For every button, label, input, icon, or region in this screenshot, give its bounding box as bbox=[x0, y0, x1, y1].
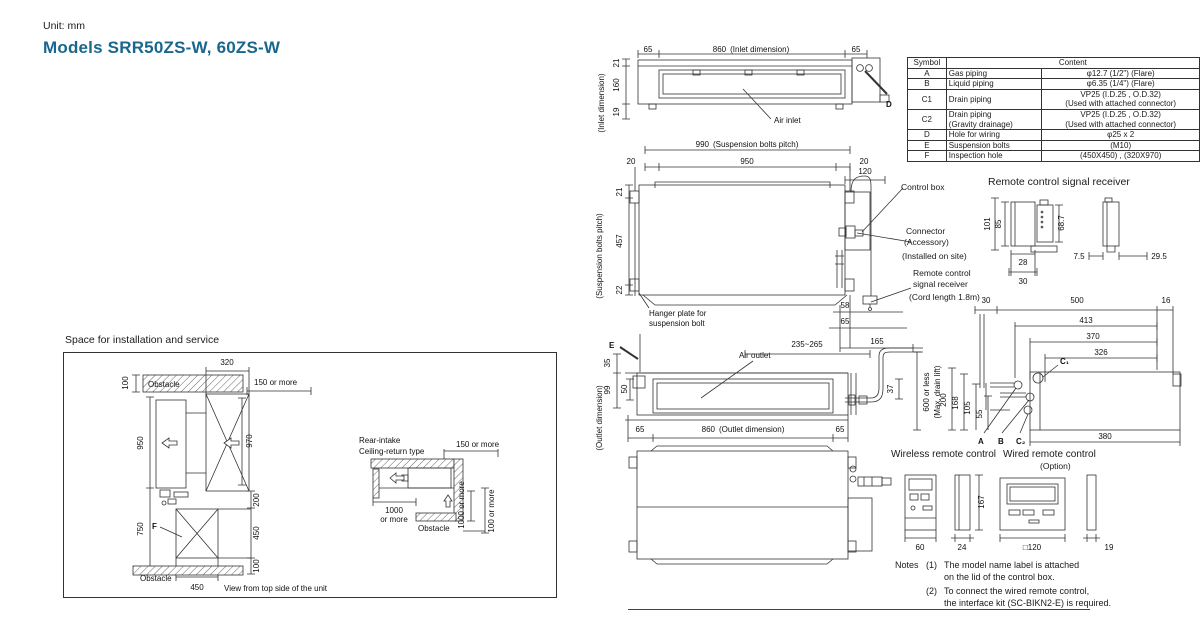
wired-remote-front bbox=[1000, 478, 1065, 530]
remote-controls-drawing: 60 24 167 □120 19 bbox=[893, 458, 1193, 558]
note2-number: (2) bbox=[926, 586, 937, 596]
cell-value: VP25 (I.D.25 , O.D.32) (Used with attach… bbox=[1042, 109, 1200, 129]
port-leaders bbox=[984, 365, 1058, 433]
hanger-plate-label-line2: suspension bolt bbox=[649, 319, 705, 328]
dim-85: 85 bbox=[994, 219, 1003, 228]
obstacle-bottom-label: Obstacle bbox=[140, 574, 172, 583]
dim-970: 970 bbox=[245, 434, 254, 448]
dim-413: 413 bbox=[1079, 316, 1093, 325]
table-row: E Suspension bolts (M10) bbox=[908, 140, 1200, 151]
dim-37: 37 bbox=[886, 384, 895, 393]
dim-167: 167 bbox=[977, 495, 986, 509]
dim-200: 200 bbox=[252, 493, 261, 507]
unit-label: Unit: mm bbox=[43, 20, 85, 32]
cell-item: Hole for wiring bbox=[946, 130, 1042, 141]
cell-value: (450X450) , (320X970) bbox=[1042, 151, 1200, 162]
dim-1000-left-line1: 1000 bbox=[385, 506, 403, 515]
dim-450-bottom: 450 bbox=[190, 583, 204, 592]
dim-500: 500 bbox=[1070, 296, 1084, 305]
dim-7-5: 7.5 bbox=[1073, 252, 1085, 261]
hanger-plate-label-line1: Hanger plate for bbox=[649, 309, 707, 318]
cell-value-line2: (Used with attached connector) bbox=[1044, 120, 1197, 130]
dim-21: 21 bbox=[612, 58, 621, 67]
rear-intake-label-line2: Ceiling-return type bbox=[359, 447, 425, 456]
receiver-side-view bbox=[1103, 198, 1119, 252]
cell-item-line1: Drain piping bbox=[949, 110, 1040, 120]
dim-50: 50 bbox=[620, 384, 629, 393]
dim-21: 21 bbox=[615, 187, 624, 196]
front-view-drawing: 990(Suspension bolts pitch) 20 950 20 12… bbox=[593, 136, 915, 352]
table-row: B Liquid piping φ6.35 (1/4") (Flare) bbox=[908, 79, 1200, 90]
symbol-table: Symbol Content A Gas piping φ12.7 (1/2")… bbox=[907, 57, 1200, 162]
note2-line1: To connect the wired remote control, bbox=[944, 586, 1089, 596]
cell-item: Drain piping (Gravity drainage) bbox=[946, 109, 1042, 129]
dim-100-bottom: 100 bbox=[252, 559, 261, 573]
dim-120-square: □120 bbox=[1023, 543, 1042, 552]
obstacle-top-label: Obstacle bbox=[148, 380, 180, 389]
table-header-row: Symbol Content bbox=[908, 58, 1200, 69]
dim-150-right: 150 or more bbox=[456, 440, 500, 449]
dim-30: 30 bbox=[982, 296, 991, 305]
dim-60: 60 bbox=[916, 543, 925, 552]
dim-168: 168 bbox=[951, 396, 960, 410]
dim-160: 160 bbox=[612, 78, 621, 92]
receiver-detail-drawing: 101 85 68.7 28 30 7.5 29.5 bbox=[985, 188, 1185, 290]
dim-105: 105 bbox=[963, 401, 972, 415]
receiver-side-dims bbox=[1089, 252, 1147, 260]
cell-item: Inspection hole bbox=[946, 151, 1042, 162]
dim-65-left: 65 bbox=[644, 45, 653, 54]
view-caption: View from top side of the unit bbox=[224, 584, 328, 593]
inspection-hole bbox=[160, 509, 218, 558]
dim-20-right: 20 bbox=[860, 157, 869, 166]
cell-value: VP25 (I.D.25 , O.D.32) (Used with attach… bbox=[1042, 89, 1200, 109]
dim-58: 58 bbox=[841, 301, 850, 310]
note1-line1: The model name label is attached bbox=[944, 560, 1079, 570]
dim-100-rotated: 100 or more bbox=[487, 489, 496, 533]
port-c1-label: C₁ bbox=[1060, 357, 1070, 366]
col-symbol: Symbol bbox=[908, 58, 947, 69]
suspension-bolt-label: E bbox=[609, 341, 615, 350]
cell-value: φ25 x 2 bbox=[1042, 130, 1200, 141]
installation-title: Space for installation and service bbox=[65, 334, 219, 346]
connector-label-line1: Connector bbox=[906, 226, 945, 236]
dim-990: 990(Suspension bolts pitch) bbox=[696, 140, 799, 149]
dim-950: 950 bbox=[740, 157, 754, 166]
unit-bottom-body bbox=[629, 446, 872, 564]
dim-457: 457 bbox=[615, 234, 624, 248]
cell-value: (M10) bbox=[1042, 140, 1200, 151]
connector-label-line3: (Installed on site) bbox=[902, 251, 967, 261]
cell-item: Drain piping bbox=[946, 89, 1042, 109]
dim-320: 320 bbox=[220, 358, 234, 367]
dim-750: 750 bbox=[136, 522, 145, 536]
dim-30: 30 bbox=[1019, 277, 1028, 286]
dim-860-inlet: 860(Inlet dimension) bbox=[713, 45, 790, 54]
inlet-dimension-axis-note: (Inlet dimension) bbox=[597, 73, 606, 132]
cell-value: φ6.35 (1/4") (Flare) bbox=[1042, 79, 1200, 90]
wired-dims bbox=[1000, 534, 1100, 542]
table-row: D Hole for wiring φ25 x 2 bbox=[908, 130, 1200, 141]
unit-plan-dims bbox=[146, 397, 246, 569]
unit-front-body bbox=[630, 167, 854, 305]
dim-450-right: 450 bbox=[252, 526, 261, 540]
control-box-label: Control box bbox=[901, 182, 944, 192]
cell-item: Liquid piping bbox=[946, 79, 1042, 90]
dim-150-left: 150 or more bbox=[254, 378, 298, 387]
bottom-piping bbox=[850, 466, 891, 486]
dim-101: 101 bbox=[983, 217, 992, 231]
dim-22: 22 bbox=[615, 285, 624, 294]
dim-68-7: 68.7 bbox=[1057, 215, 1066, 231]
dim-235-265: 235~265 bbox=[791, 340, 823, 349]
dim-55: 55 bbox=[975, 409, 984, 418]
dim-100-top: 100 bbox=[121, 376, 130, 390]
wired-remote-side bbox=[1087, 475, 1096, 530]
air-outlet-label: Air outlet bbox=[739, 351, 771, 360]
dim-16: 16 bbox=[1162, 296, 1171, 305]
receiver-label-line2: signal receiver bbox=[913, 279, 968, 289]
dim-1000-rotated: 1000 or more bbox=[457, 481, 466, 529]
dim-120: 120 bbox=[858, 167, 872, 176]
cell-symbol: A bbox=[908, 68, 947, 79]
cell-symbol: C2 bbox=[908, 109, 947, 129]
outlet-dimension-axis-note: (Outlet dimension) bbox=[595, 385, 604, 451]
side-view-drawing: 30 500 16 413 370 326 C₁ A B C₂ bbox=[930, 290, 1200, 455]
receiver-detail-title: Remote control signal receiver bbox=[988, 176, 1130, 188]
cell-value-line2: (Used with attached connector) bbox=[1044, 99, 1197, 109]
air-outlet-leader bbox=[701, 361, 753, 398]
dim-65: 65 bbox=[841, 317, 850, 326]
wireless-dims bbox=[905, 475, 983, 542]
cell-item-line2: (Gravity drainage) bbox=[949, 120, 1040, 130]
wiring-hole-detail bbox=[852, 58, 889, 102]
obstacle-right-label: Obstacle bbox=[418, 524, 450, 533]
bolt-leader bbox=[620, 347, 638, 359]
cell-value: φ12.7 (1/2") (Flare) bbox=[1042, 68, 1200, 79]
unit-side-body bbox=[1030, 372, 1181, 430]
cell-symbol: C1 bbox=[908, 89, 947, 109]
dim-1000-left-line2: or more bbox=[380, 515, 408, 524]
pipe-ports bbox=[986, 373, 1043, 414]
dim-370: 370 bbox=[1086, 332, 1100, 341]
notes-label: Notes bbox=[895, 560, 919, 570]
table-row: C2 Drain piping (Gravity drainage) VP25 … bbox=[908, 109, 1200, 129]
table-row: A Gas piping φ12.7 (1/2") (Flare) bbox=[908, 68, 1200, 79]
dim-950: 950 bbox=[136, 436, 145, 450]
table-row: F Inspection hole (450X450) , (320X970) bbox=[908, 151, 1200, 162]
col-content: Content bbox=[946, 58, 1199, 69]
note2-line2: the interface kit (SC-BIKN2-E) is requir… bbox=[944, 598, 1111, 608]
sheet-divider bbox=[628, 609, 1090, 610]
dim-20-left: 20 bbox=[627, 157, 636, 166]
dim-326: 326 bbox=[1094, 348, 1108, 357]
receiver-front-view bbox=[1011, 200, 1057, 252]
dim-65-left: 65 bbox=[636, 425, 645, 434]
cell-item: Gas piping bbox=[946, 68, 1042, 79]
cell-value-line1: VP25 (I.D.25 , O.D.32) bbox=[1044, 90, 1197, 100]
rear-intake-label-line1: Rear-intake bbox=[359, 436, 401, 445]
wireless-remote-front bbox=[905, 475, 936, 530]
unit-top-body bbox=[638, 60, 852, 109]
receiver-label-line1: Remote control bbox=[913, 268, 971, 278]
dim-35: 35 bbox=[603, 358, 612, 367]
dim-19: 19 bbox=[1105, 543, 1114, 552]
drain-piping bbox=[845, 348, 923, 415]
dim-19: 19 bbox=[612, 107, 621, 116]
port-a-label: A bbox=[978, 437, 984, 446]
dim-28: 28 bbox=[1019, 258, 1028, 267]
dim-24: 24 bbox=[958, 543, 967, 552]
outlet-left-dims bbox=[613, 354, 634, 408]
wireless-remote-side bbox=[955, 475, 970, 530]
side-view-dims-top bbox=[975, 306, 1173, 388]
note1-number: (1) bbox=[926, 560, 937, 570]
inspection-hole-label: F bbox=[152, 522, 157, 531]
dim-380: 380 bbox=[1098, 432, 1112, 441]
connector-label-line2: (Accessory) bbox=[904, 237, 949, 247]
cell-symbol: B bbox=[908, 79, 947, 90]
hole-for-wiring-label: D bbox=[886, 100, 892, 109]
installation-panel: 320 100 Obstacle 150 or more 950 970 750 bbox=[63, 352, 557, 598]
installation-drawing: 320 100 Obstacle 150 or more 950 970 750 bbox=[64, 353, 556, 597]
cell-item: Suspension bolts bbox=[946, 140, 1042, 151]
unit-plan-outline bbox=[156, 394, 249, 491]
cell-value-line1: VP25 (I.D.25 , O.D.32) bbox=[1044, 110, 1197, 120]
spec-sheet: Unit: mm Models SRR50ZS-W, 60ZS-W Symbol… bbox=[0, 0, 1200, 617]
dim-99: 99 bbox=[603, 385, 612, 394]
air-inlet-label: Air inlet bbox=[774, 116, 801, 125]
port-b-label: B bbox=[998, 437, 1004, 446]
table-row: C1 Drain piping VP25 (I.D.25 , O.D.32) (… bbox=[908, 89, 1200, 109]
note1-line2: on the lid of the control box. bbox=[944, 572, 1055, 582]
dim-860-outlet: 860(Outlet dimension) bbox=[702, 425, 785, 434]
suspension-pitch-axis-note: (Suspension bolts pitch) bbox=[595, 213, 604, 299]
port-c2-label: C₂ bbox=[1016, 437, 1026, 446]
bottom-view-drawing bbox=[600, 443, 910, 578]
dim-65-right: 65 bbox=[836, 425, 845, 434]
dim-200: 200 bbox=[939, 393, 948, 407]
dim-65-right: 65 bbox=[852, 45, 861, 54]
outlet-view-drawing: E Air outlet 35 99 50 (Outlet dimension)… bbox=[593, 332, 945, 448]
models-title: Models SRR50ZS-W, 60ZS-W bbox=[43, 38, 280, 58]
front-view-dims bbox=[625, 146, 885, 295]
signal-receiver-widget bbox=[863, 296, 877, 311]
unit-plan-piping bbox=[160, 490, 188, 505]
dim-29-5: 29.5 bbox=[1151, 252, 1167, 261]
